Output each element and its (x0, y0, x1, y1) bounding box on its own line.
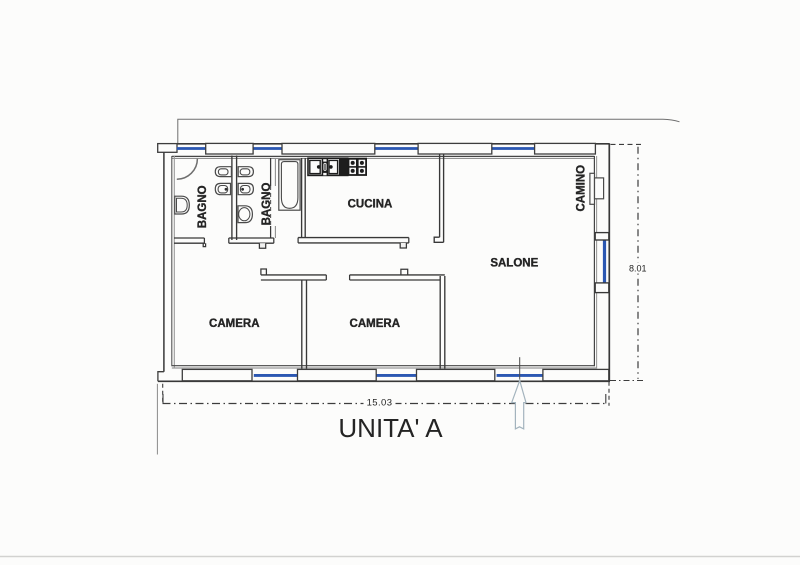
svg-text:BAGNO: BAGNO (197, 185, 209, 228)
svg-text:CAMERA: CAMERA (350, 318, 400, 330)
svg-text:8.01: 8.01 (629, 264, 647, 274)
svg-text:CAMINO: CAMINO (576, 165, 588, 212)
svg-text:SALONE: SALONE (490, 258, 538, 270)
svg-text:CAMERA: CAMERA (209, 318, 259, 330)
svg-text:UNITA' A: UNITA' A (338, 413, 443, 443)
svg-text:CUCINA: CUCINA (348, 199, 393, 211)
svg-text:BAGNO: BAGNO (261, 183, 273, 226)
svg-text:15.03: 15.03 (367, 398, 393, 409)
